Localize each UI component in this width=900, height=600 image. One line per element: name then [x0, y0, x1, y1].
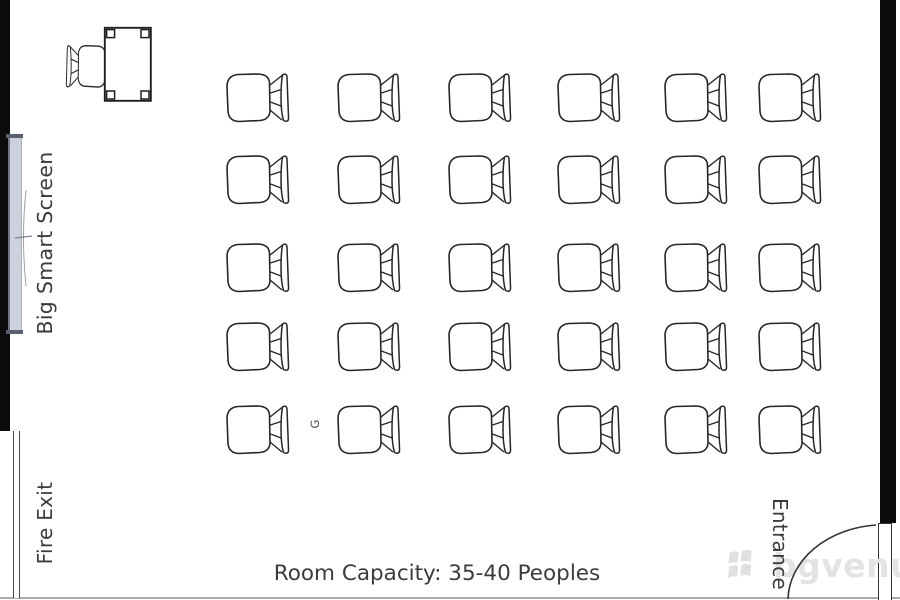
floor-plan: Big Smart Screen Fire Exit Entrance G Ro… [0, 0, 900, 600]
chair [336, 72, 402, 124]
fire-exit-label: Fire Exit [33, 468, 57, 578]
chair [336, 242, 402, 294]
screen-dimension-curve [24, 190, 27, 286]
chair [663, 154, 729, 206]
watermark-text: bgvenue [773, 549, 900, 582]
chair [225, 321, 291, 373]
chair [447, 404, 513, 456]
chair [663, 321, 729, 373]
watermark: bgvenue [726, 549, 900, 582]
chair [556, 242, 622, 294]
presenter-chair [66, 46, 105, 87]
chair [663, 242, 729, 294]
chair [447, 154, 513, 206]
chair [757, 154, 823, 206]
chair [556, 154, 622, 206]
row-marker-g: G [308, 414, 328, 434]
watermark-flag-grid-icon [726, 549, 766, 582]
chair [225, 242, 291, 294]
chair [447, 72, 513, 124]
chair [663, 404, 729, 456]
chair [336, 321, 402, 373]
chair [757, 404, 823, 456]
right-wall [880, 0, 896, 523]
chair [447, 321, 513, 373]
chair [663, 72, 729, 124]
screen-top-cap [6, 134, 23, 138]
chair [556, 72, 622, 124]
presenter-table [105, 28, 151, 101]
big-smart-screen-label: Big Smart Screen [33, 148, 59, 338]
chair [556, 404, 622, 456]
fire-exit-door [13, 431, 20, 598]
room-capacity-label: Room Capacity: 35-40 Peoples [177, 561, 697, 586]
chair [225, 72, 291, 124]
chair [225, 154, 291, 206]
chair [336, 404, 402, 456]
chair [336, 154, 402, 206]
chair [225, 404, 291, 456]
entrance-label: Entrance [768, 489, 792, 599]
screen-bottom-cap [6, 330, 23, 334]
smart-screen-bar [8, 137, 22, 334]
chair [447, 242, 513, 294]
chair [757, 321, 823, 373]
bottom-wall-line [0, 597, 900, 599]
chair [556, 321, 622, 373]
presenter-table-and-chair [62, 24, 158, 108]
chair [757, 242, 823, 294]
chair [757, 72, 823, 124]
